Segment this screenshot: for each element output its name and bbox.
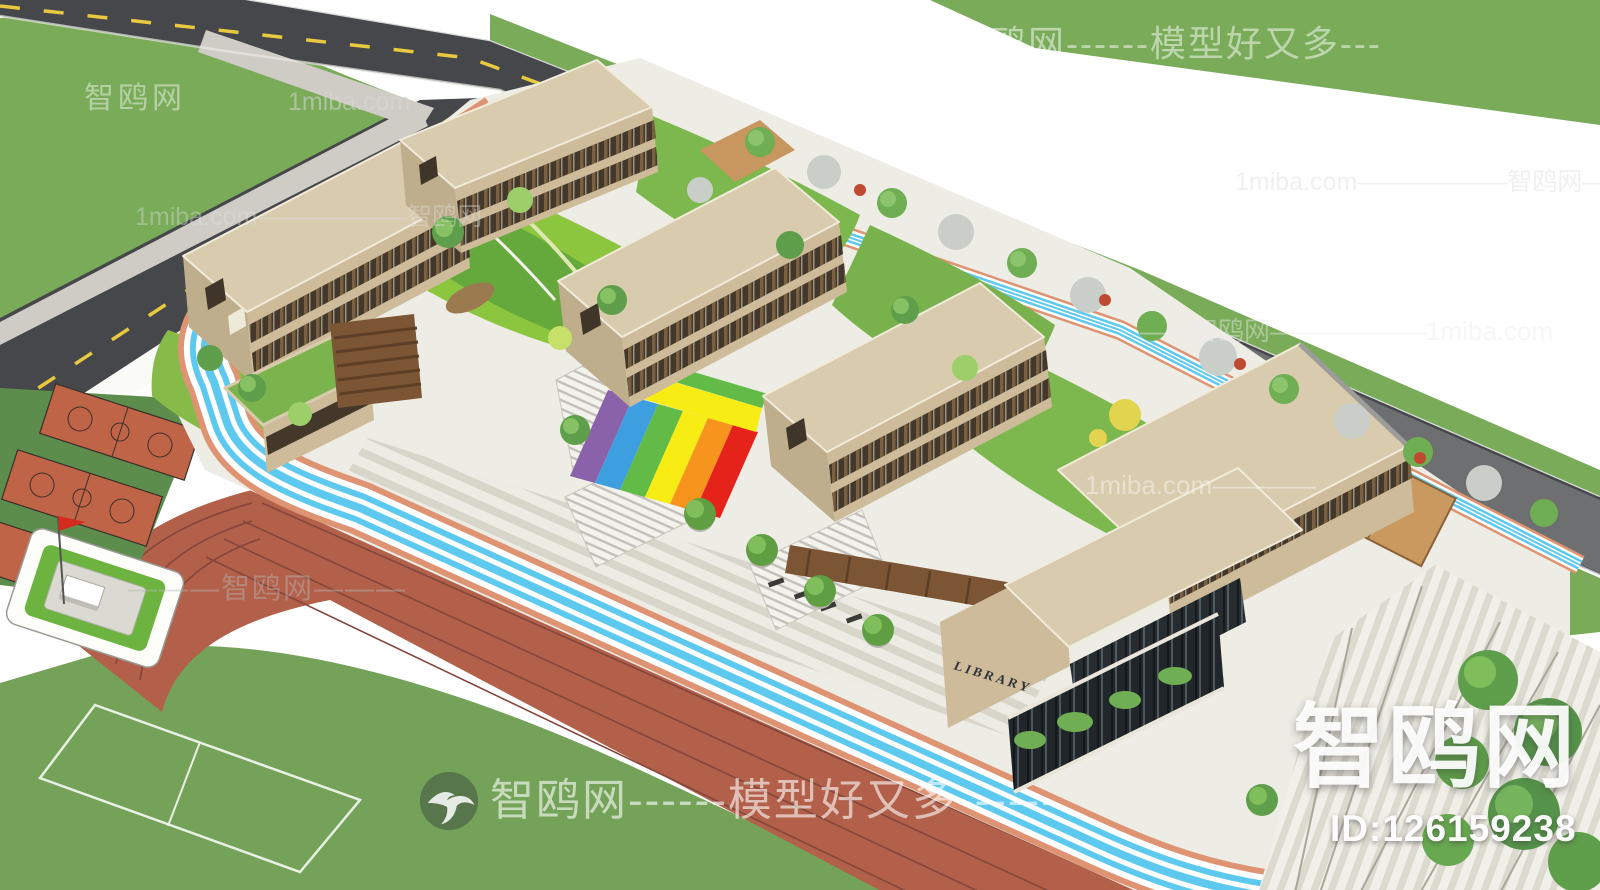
screenshot-root: 智鸥网 1miba.com 智鸥网------模型好又多--- 1miba.co… <box>0 0 1600 890</box>
pergola <box>330 314 422 408</box>
campus-render <box>0 0 1600 890</box>
